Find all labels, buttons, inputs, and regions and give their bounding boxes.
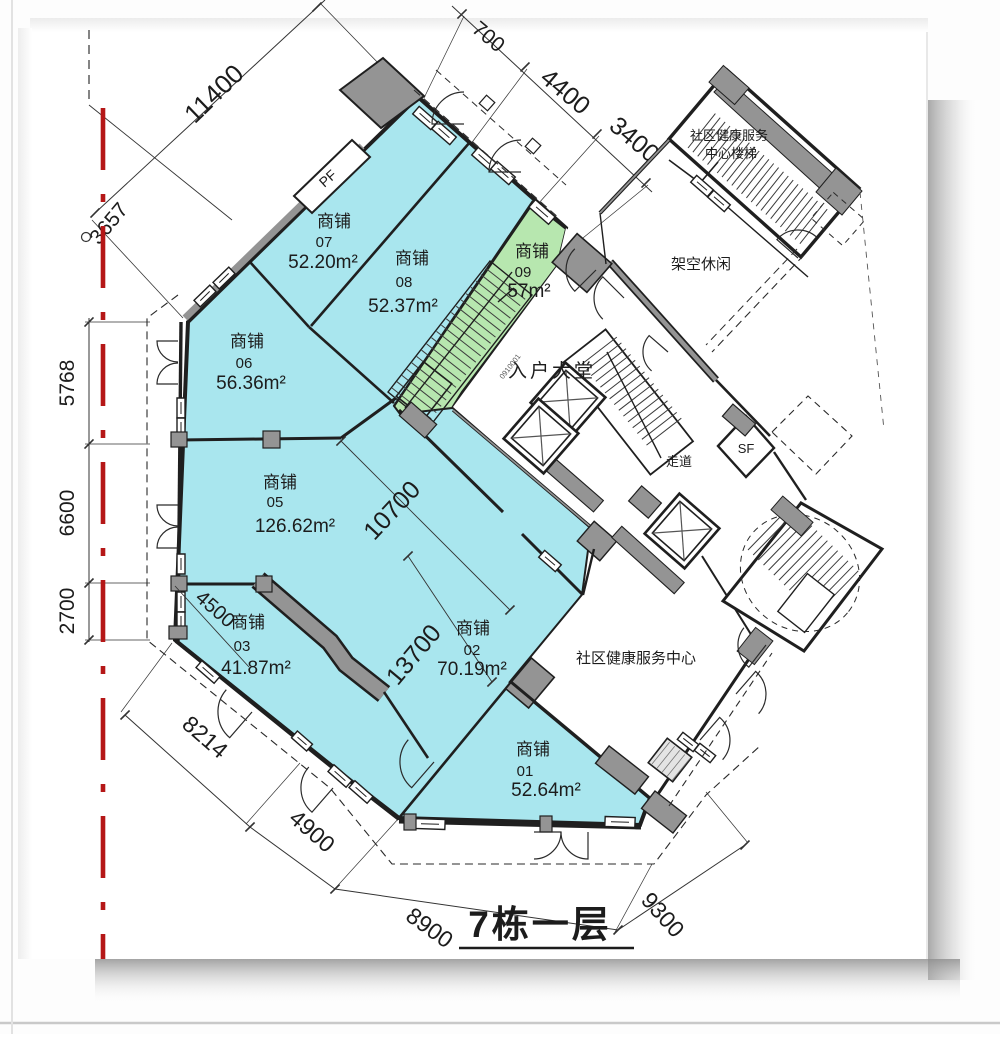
svg-text:5768: 5768 [56,360,79,407]
svg-text:商铺: 商铺 [516,740,550,759]
svg-text:商铺: 商铺 [231,613,265,632]
svg-text:商铺: 商铺 [515,242,549,261]
svg-text:2700: 2700 [56,588,79,635]
svg-text:09: 09 [515,264,532,281]
svg-text:52.20m²: 52.20m² [288,252,358,273]
svg-text:SF: SF [738,441,755,456]
svg-text:6600: 6600 [56,490,79,537]
svg-text:06: 06 [236,355,253,372]
svg-text:入户大堂: 入户大堂 [508,360,596,382]
svg-text:商铺: 商铺 [230,332,264,351]
svg-text:52.64m²: 52.64m² [511,780,581,801]
svg-text:07: 07 [316,234,333,251]
svg-text:126.62m²: 126.62m² [255,516,335,537]
svg-text:架空休闲: 架空休闲 [671,256,731,273]
svg-text:57m²: 57m² [507,281,550,302]
svg-text:7栋一层: 7栋一层 [468,904,612,945]
svg-text:02: 02 [464,642,481,659]
svg-text:社区健康服务: 社区健康服务 [690,128,768,143]
svg-text:03: 03 [234,638,251,655]
svg-text:52.37m²: 52.37m² [368,296,438,317]
svg-text:商铺: 商铺 [456,619,490,638]
svg-text:70.19m²: 70.19m² [437,659,507,680]
svg-text:05: 05 [267,494,284,511]
svg-text:41.87m²: 41.87m² [221,658,291,679]
svg-text:社区健康服务中心: 社区健康服务中心 [576,650,696,667]
svg-text:56.36m²: 56.36m² [216,373,286,394]
svg-text:商铺: 商铺 [395,249,429,268]
svg-text:商铺: 商铺 [317,212,351,231]
svg-text:走道: 走道 [666,454,692,469]
svg-text:08: 08 [396,274,413,291]
svg-text:01: 01 [517,763,534,780]
svg-text:中心楼梯: 中心楼梯 [705,146,757,161]
svg-text:商铺: 商铺 [263,473,297,492]
